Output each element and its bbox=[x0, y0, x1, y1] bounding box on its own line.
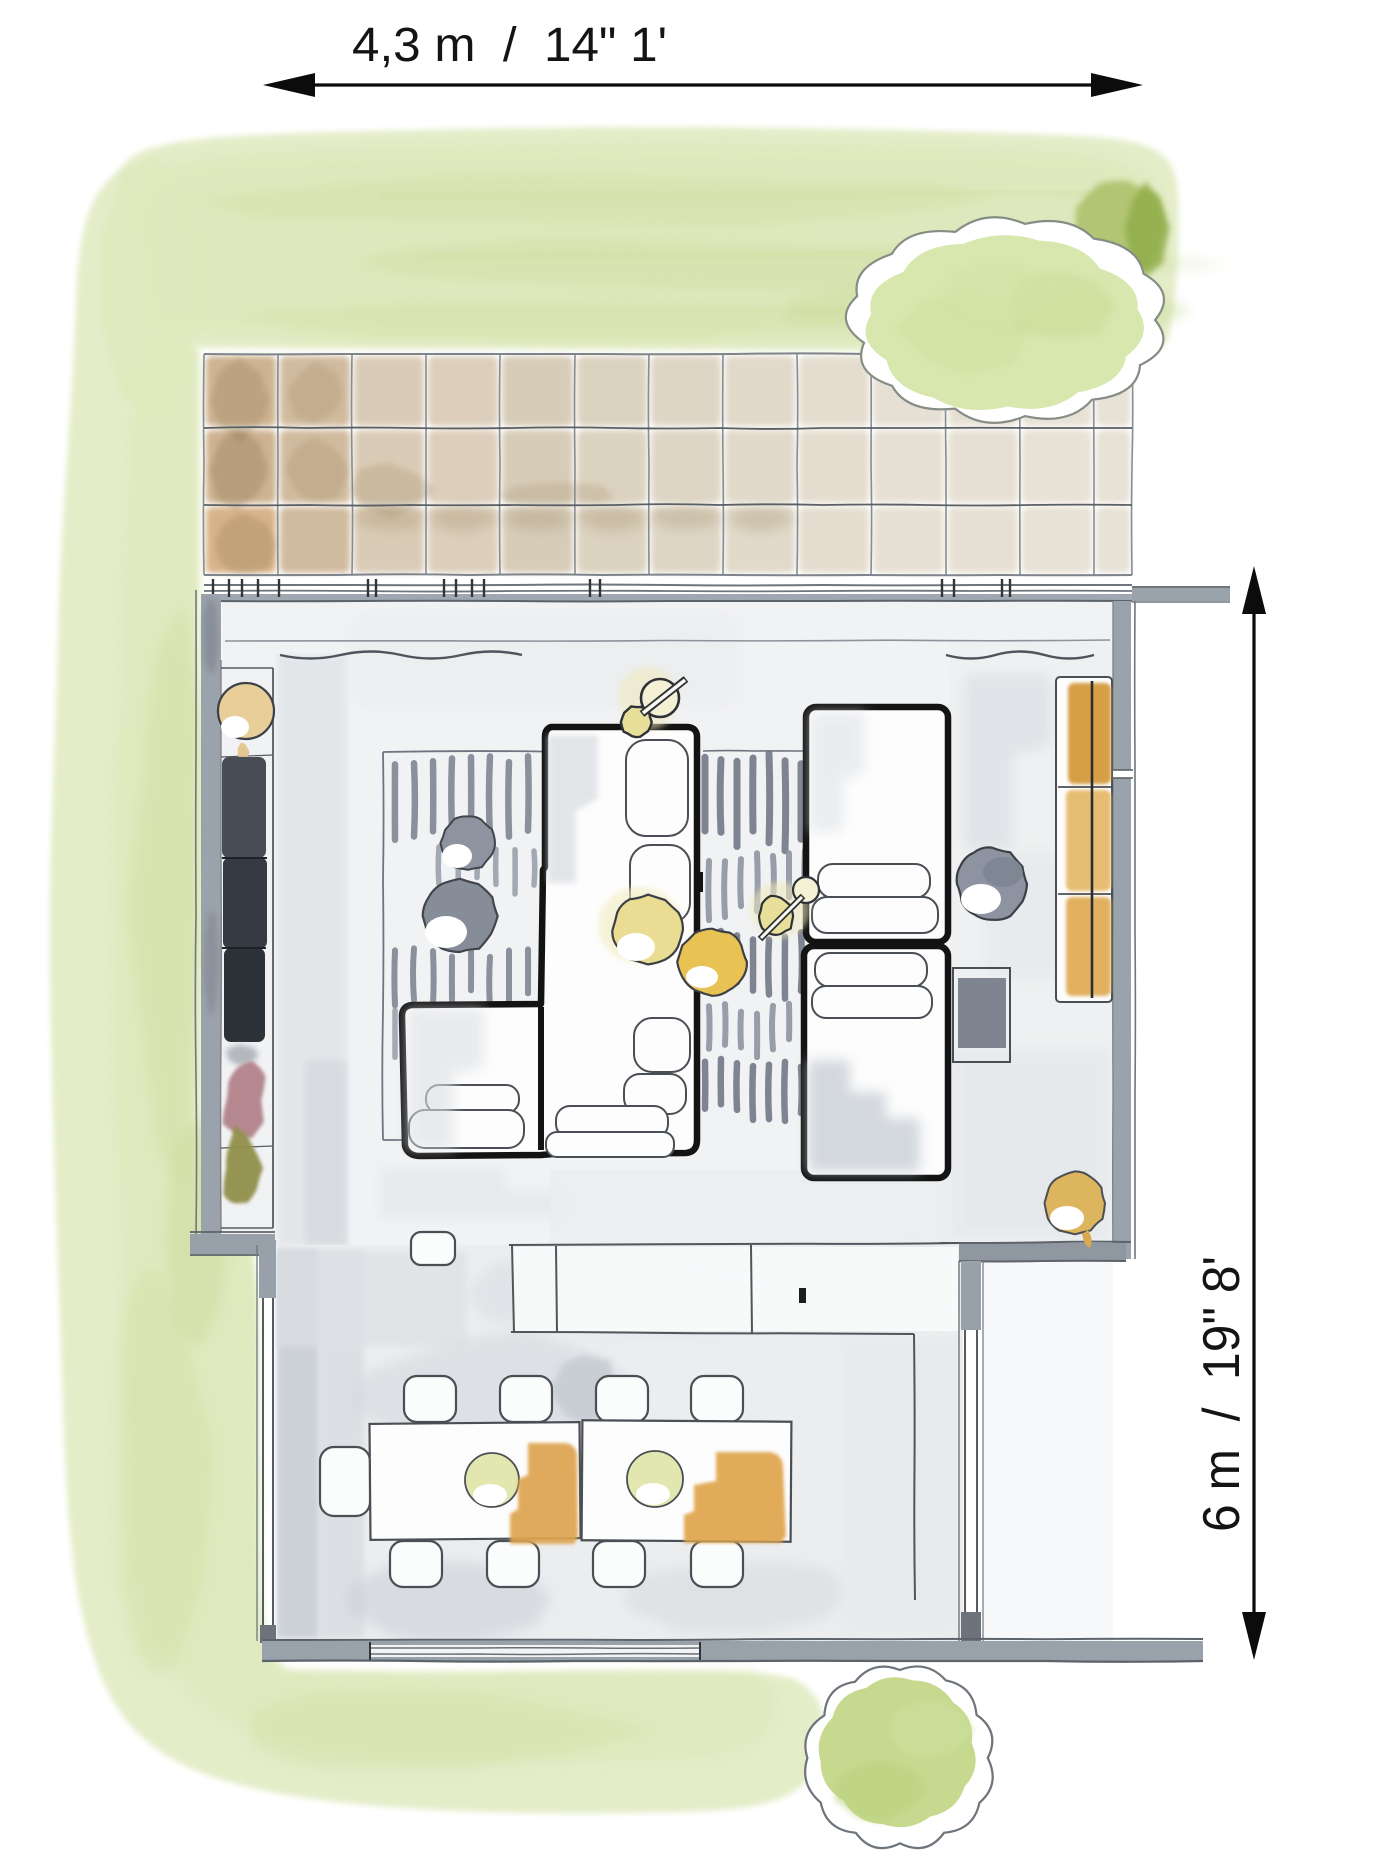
svg-text:6 m / 19" 8': 6 m / 19" 8' bbox=[1193, 1256, 1251, 1532]
svg-text:4,3 m / 14" 1': 4,3 m / 14" 1' bbox=[352, 19, 667, 72]
